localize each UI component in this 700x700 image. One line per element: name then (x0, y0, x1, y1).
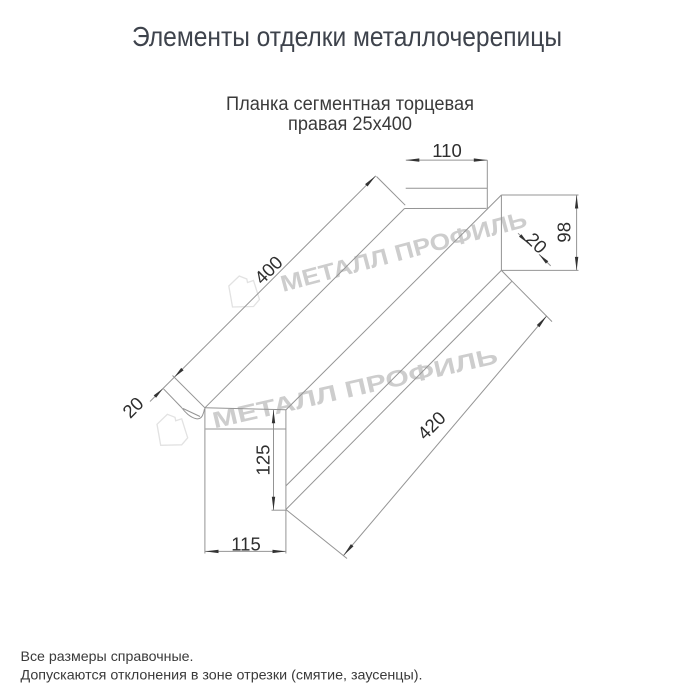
svg-text:420: 420 (413, 407, 450, 444)
svg-text:Элементы отделки металлочерепи: Элементы отделки металлочерепицы (132, 21, 562, 52)
svg-text:Все размеры справочные.: Все размеры справочные. (21, 648, 194, 664)
svg-text:20: 20 (118, 393, 147, 422)
svg-text:115: 115 (231, 534, 261, 555)
svg-text:20: 20 (522, 228, 551, 257)
svg-text:правая 25х400: правая 25х400 (288, 114, 412, 135)
svg-text:МЕТАЛЛ ПРОФИЛЬ: МЕТАЛЛ ПРОФИЛЬ (278, 206, 530, 297)
svg-text:98: 98 (554, 222, 575, 243)
svg-text:МЕТАЛЛ ПРОФИЛЬ: МЕТАЛЛ ПРОФИЛЬ (210, 342, 500, 433)
svg-text:110: 110 (432, 140, 462, 161)
svg-text:125: 125 (253, 445, 274, 476)
svg-text:Допускаются отклонения в зоне: Допускаются отклонения в зоне отрезки (с… (21, 667, 423, 683)
svg-text:Планка сегментная торцевая: Планка сегментная торцевая (226, 94, 474, 115)
